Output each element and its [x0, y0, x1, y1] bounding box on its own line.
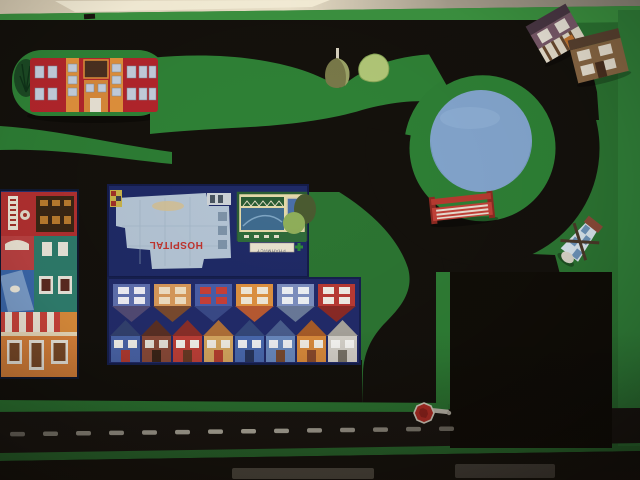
bottom-shade	[0, 330, 640, 480]
play-table-photo: HOSPITAL PHARMACY	[0, 0, 640, 480]
